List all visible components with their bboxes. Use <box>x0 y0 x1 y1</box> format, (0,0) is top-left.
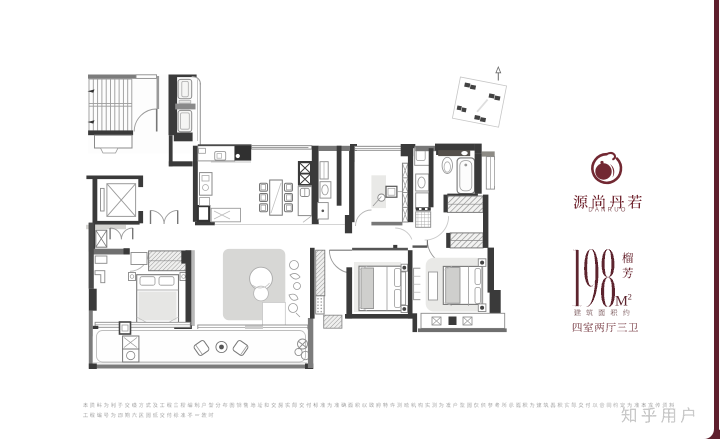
svg-text:DANRUO: DANRUO <box>588 208 627 214</box>
svg-text:2: 2 <box>628 292 632 302</box>
